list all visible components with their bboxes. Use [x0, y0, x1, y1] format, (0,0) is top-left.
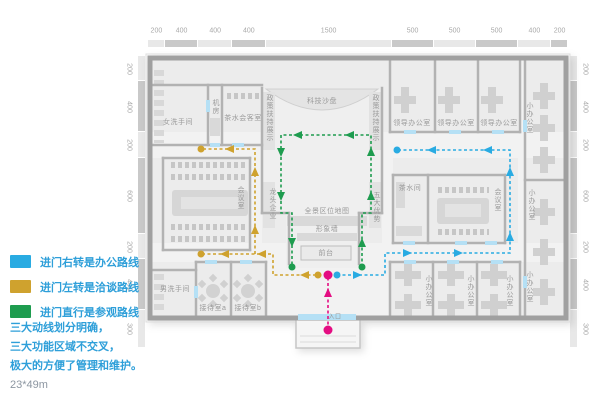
cabinet [210, 118, 220, 136]
room-label: 小办公室 [465, 275, 475, 307]
desk [490, 294, 498, 316]
round-table [241, 284, 255, 298]
desk [533, 248, 555, 256]
floor-plan-page: 2004004004001500500500500400200 20040020… [0, 0, 600, 400]
room-label: 领导办公室 [437, 118, 475, 128]
door [485, 241, 497, 245]
room-label: 小办公室 [524, 102, 534, 134]
corridor [382, 132, 393, 262]
room-label: 机房 [210, 99, 220, 115]
door [447, 260, 459, 264]
door [403, 241, 415, 245]
legend-label: 进门直行是参观路线 [40, 304, 139, 320]
desk [481, 96, 503, 104]
room-label: 政策扶持展示 [264, 94, 274, 142]
desk [533, 288, 555, 296]
desk [533, 208, 555, 216]
desk [404, 294, 412, 316]
room-label: 五大优势 [371, 191, 381, 223]
desk [404, 264, 412, 286]
route-dot [198, 146, 205, 153]
desk [533, 156, 555, 164]
desk [447, 294, 455, 316]
conference-table-inner [445, 204, 481, 217]
cabinet [297, 233, 357, 241]
room-label: 男洗手间 [160, 284, 190, 294]
room-label: 茶水间 [399, 183, 422, 193]
desk [533, 92, 555, 100]
legend-label: 进门左转是洽谈路线 [40, 279, 139, 295]
legend-swatch [10, 305, 31, 318]
legend-item-office: 进门右转是办公路线 [10, 249, 139, 274]
route-dot [359, 264, 366, 271]
route-dot [198, 251, 205, 258]
legend-swatch [10, 255, 31, 268]
notes-block: 三大动线划分明确， 三大功能区域不交叉， 极大的方便了管理和维护。 23*49m [10, 319, 142, 391]
note-line-2: 三大功能区域不交叉， [10, 338, 142, 357]
legend-swatch [10, 280, 31, 293]
door [491, 260, 503, 264]
room-label: 前台 [319, 248, 334, 258]
room-label: 形象墙 [316, 224, 339, 234]
door [404, 130, 416, 134]
room-label: 会议室 [492, 188, 502, 212]
room-label: 龙头企业 [267, 188, 277, 220]
corridor [250, 145, 262, 250]
legend-label: 进门右转是办公路线 [40, 254, 139, 270]
plan-dimensions: 23*49m [10, 379, 142, 391]
desk [533, 124, 555, 132]
room-label: 接待室b [235, 303, 262, 313]
note-line-1: 三大动线划分明确， [10, 319, 142, 338]
cabinet [396, 226, 422, 236]
room-label: 入口 [328, 312, 341, 321]
room-label: 会议室 [235, 186, 245, 210]
room-label: 女洗手间 [163, 117, 193, 127]
note-line-3: 极大的方便了管理和维护。 [10, 357, 142, 376]
door [205, 260, 217, 264]
round-table [206, 284, 220, 298]
legend-item-negotiation: 进门左转是洽谈路线 [10, 274, 139, 299]
room-label: 领导办公室 [480, 118, 518, 128]
room-label: 小办公室 [526, 189, 536, 221]
room-label: 领导办公室 [393, 118, 431, 128]
room-label: 科技沙盘 [307, 96, 337, 106]
route-dot [289, 264, 296, 271]
conference-table-inner [181, 197, 239, 209]
door [404, 260, 416, 264]
route-dot [394, 147, 401, 154]
room-label: 小办公室 [504, 275, 514, 307]
route-dot [324, 271, 333, 280]
door [240, 260, 252, 264]
desk [438, 96, 460, 104]
route-dot [334, 272, 341, 279]
door [455, 241, 467, 245]
room-label: 小办公室 [524, 271, 534, 303]
route-dot [315, 272, 322, 279]
room-label: 全景区位地图 [305, 206, 350, 216]
desk [447, 264, 455, 286]
door [449, 130, 461, 134]
room-label: 政策扶持展示 [370, 94, 380, 142]
desk [490, 264, 498, 286]
door [210, 143, 220, 147]
door [492, 130, 504, 134]
route-legend: 进门右转是办公路线进门左转是洽谈路线进门直行是参观路线 [10, 249, 139, 324]
door [298, 314, 356, 320]
desk [394, 96, 416, 104]
room-label: 小办公室 [423, 275, 433, 307]
room-label: 茶水会客室 [224, 113, 262, 123]
route-dot [324, 326, 333, 335]
room-label: 接待室a [200, 303, 227, 313]
door [194, 286, 198, 298]
